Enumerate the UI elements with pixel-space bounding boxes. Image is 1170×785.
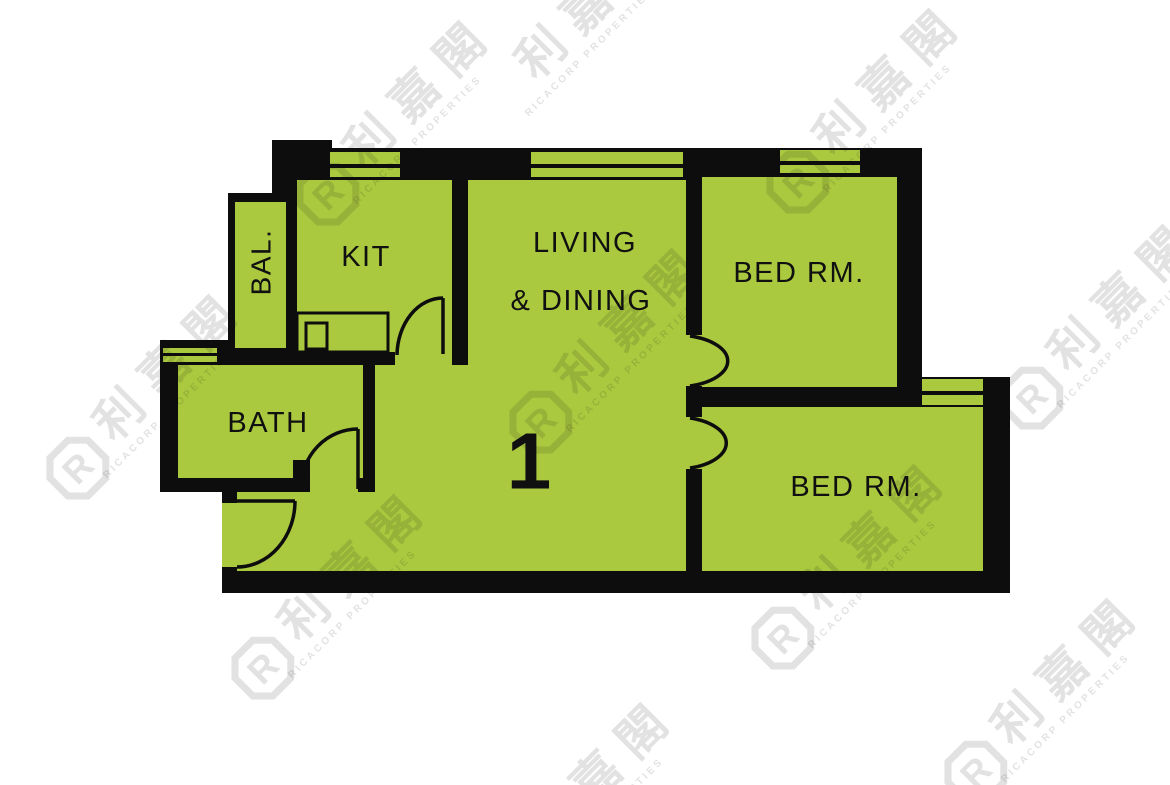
window-bathroom-side-mullion <box>163 353 217 356</box>
room-label-living-line2: & DINING <box>511 285 652 317</box>
floor-plan: BAL. KIT LIVING & DINING BED RM. BATH BE… <box>0 0 1170 785</box>
room-label-bedroom-1: BED RM. <box>733 257 864 289</box>
window-living-mullion <box>531 164 683 168</box>
unit-number: 1 <box>507 417 552 506</box>
room-label-bathroom: BATH <box>227 407 308 439</box>
room-label-living-line1: LIVING <box>533 227 637 259</box>
doorway-bathroom <box>310 478 358 492</box>
room-label-bedroom-2: BED RM. <box>790 471 921 503</box>
room-label-kitchen: KIT <box>341 241 391 273</box>
window-bedroom-1-mullion <box>780 161 860 165</box>
doorway-bedroom-2 <box>686 417 702 469</box>
doorway-bedroom-1 <box>686 335 702 386</box>
doorway-entrance <box>222 503 237 567</box>
floor-plan-drawing: BAL. KIT LIVING & DINING BED RM. BATH BE… <box>0 0 1170 785</box>
window-bedroom-2-bay-mullion <box>922 391 983 395</box>
window-kitchen-mullion <box>330 164 400 168</box>
room-label-balcony: BAL. <box>246 229 277 296</box>
